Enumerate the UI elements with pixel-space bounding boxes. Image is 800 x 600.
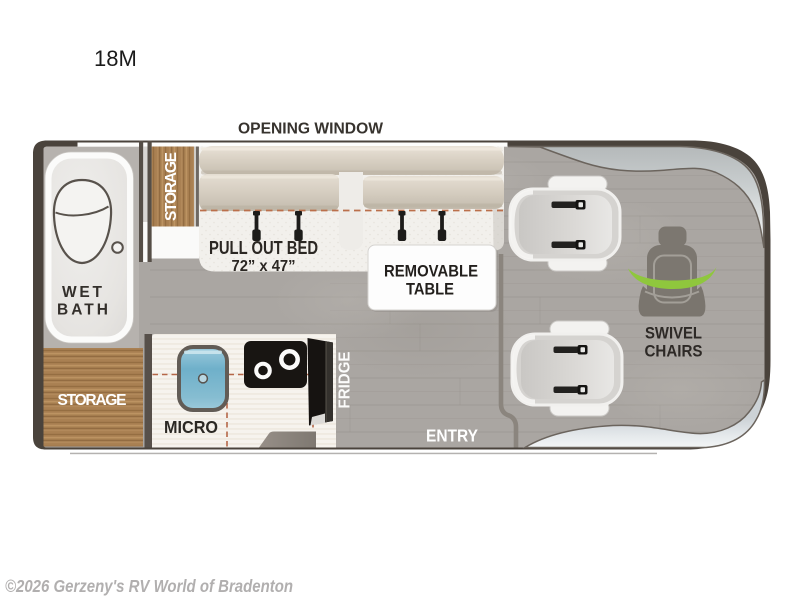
svg-text:STORAGE: STORAGE xyxy=(58,392,127,409)
svg-text:TABLE: TABLE xyxy=(406,280,454,299)
svg-text:72” x 47”: 72” x 47” xyxy=(232,258,296,275)
svg-text:OPENING WINDOW: OPENING WINDOW xyxy=(238,121,383,138)
svg-text:MICRO: MICRO xyxy=(164,417,218,437)
svg-text:CHAIRS: CHAIRS xyxy=(645,343,703,361)
svg-text:REMOVABLE: REMOVABLE xyxy=(384,262,478,281)
svg-text:STORAGE: STORAGE xyxy=(163,152,180,221)
svg-text:18M: 18M xyxy=(94,46,137,71)
svg-text:FRIDGE: FRIDGE xyxy=(337,351,354,408)
svg-text:SWIVEL: SWIVEL xyxy=(645,325,702,343)
svg-text:ENTRY: ENTRY xyxy=(426,426,478,446)
svg-text:PULL OUT BED: PULL OUT BED xyxy=(209,237,318,258)
svg-text:WET: WET xyxy=(62,284,103,301)
svg-text:©2026 Gerzeny's RV World of Br: ©2026 Gerzeny's RV World of Bradenton xyxy=(5,576,293,596)
